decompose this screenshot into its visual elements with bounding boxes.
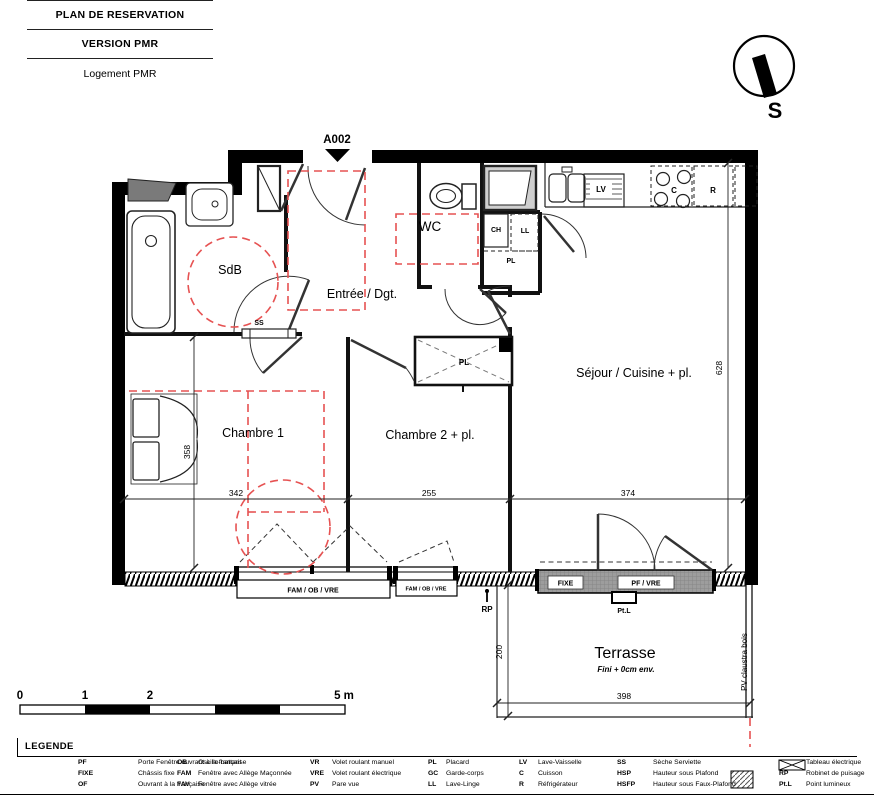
legend-label: Placard <box>446 759 469 766</box>
legend-abbr: LV <box>519 759 538 766</box>
legend-entry: Tableau électrique <box>779 759 865 770</box>
legend-label: Hauteur sous Faux-Plafond <box>653 781 736 788</box>
legend-abbr: PF <box>78 759 138 766</box>
legend-abbr: PV <box>310 781 332 788</box>
room-label-sdb: SdB <box>218 263 242 277</box>
cooktop-label: C <box>671 186 677 195</box>
towel-dryer-label: SS <box>254 320 264 327</box>
window1-label: FAM / OB / VRE <box>287 588 339 595</box>
window-swing-indicators <box>240 524 712 562</box>
window-chambre1: FAM / OB / VRE <box>234 565 392 598</box>
room-label-wc: WC <box>419 219 442 234</box>
scale-bar <box>20 705 345 714</box>
dim-200: 200 <box>494 645 504 659</box>
wardrobe-pl-label: PL <box>459 358 469 367</box>
legend-label: Fenêtre avec Allège vitrée <box>198 781 277 788</box>
window3-pf-label: PF / VRE <box>631 581 661 588</box>
legend-col-6: SSSèche Serviette HSPHauteur sous Plafon… <box>617 759 736 792</box>
kitchen-fixtures <box>545 163 757 208</box>
legend-label: Volet roulant électrique <box>332 770 401 777</box>
legend-abbr: Pt.L <box>779 781 806 788</box>
compass-needle <box>752 54 777 98</box>
legend-label: Volet roulant manuel <box>332 759 394 766</box>
wardrobe-chambre2: PL <box>415 337 512 392</box>
dim-374: 374 <box>621 488 635 498</box>
legend-entry: FAMFenêtre avec Allège Maçonnée <box>177 770 292 781</box>
window-sejour: FIXE PF / VRE <box>535 569 716 593</box>
legend-label: Point lumineux <box>806 781 851 788</box>
legend-entry: RPRobinet de puisage <box>779 770 865 781</box>
legend-abbr: VRE <box>310 770 332 777</box>
plan-title: PLAN DE RESERVATION <box>20 1 220 29</box>
claustra-label: PV claustra bois <box>740 633 749 691</box>
scale-2: 2 <box>147 690 153 702</box>
legend-label: Cuisson <box>538 770 563 777</box>
dim-342: 342 <box>229 488 243 498</box>
legend-entry: GCGarde-corps <box>428 770 484 781</box>
legend-label: Lave-Linge <box>446 781 480 788</box>
legend-label: Oscillo-battant <box>198 759 241 766</box>
legend-entry: Pt.LPoint lumineux <box>779 781 865 792</box>
legend-col-5: LVLave-Vaisselle CCuisson RRéfrigérateur <box>519 759 582 792</box>
legend-entry: PVPare vue <box>310 781 401 792</box>
legend-entry: LLLave-Linge <box>428 781 484 792</box>
legend-entry: HSPHauteur sous Plafond <box>617 770 736 781</box>
legend-label: Châssis fixe <box>138 770 175 777</box>
legend-left-bar <box>17 738 18 757</box>
plan-subtitle: Logement PMR <box>20 59 220 89</box>
room-label-sejour: Séjour / Cuisine + pl. <box>576 366 692 380</box>
rp-label: RP <box>481 605 493 614</box>
bed-chambre1 <box>131 394 197 484</box>
legend-abbr: R <box>519 781 538 788</box>
boiler-label: CH <box>491 227 501 234</box>
legend-top-rule <box>17 756 857 757</box>
legend-label: Fenêtre avec Allège Maçonnée <box>198 770 292 777</box>
scale-0: 0 <box>17 690 23 702</box>
legend-bottom-rule <box>0 794 874 795</box>
window2-label: FAM / OB / VRE <box>405 587 446 593</box>
unit-id-label: A002 <box>323 134 351 146</box>
legend-entry: HSFPHauteur sous Faux-Plafond <box>617 781 736 792</box>
legend-entry: VRVolet roulant manuel <box>310 759 401 770</box>
legend-col-7: Tableau électrique RPRobinet de puisage … <box>779 759 865 792</box>
legend-label: Tableau électrique <box>806 759 861 766</box>
entrance-marker <box>325 149 350 162</box>
closet-pl-label: PL <box>507 258 517 265</box>
dim-398: 398 <box>617 691 631 701</box>
legend-abbr: HSP <box>617 770 653 777</box>
room-label-entree: Entrée / Dgt. <box>327 287 397 301</box>
legend-col-2: OBOscillo-battant FAMFenêtre avec Allège… <box>177 759 292 792</box>
legend-abbr: PL <box>428 759 446 766</box>
legend-abbr: GC <box>428 770 446 777</box>
room-label-chambre1: Chambre 1 <box>222 426 284 440</box>
legend-title: LEGENDE <box>25 741 74 752</box>
floor-plan-drawing: FAM / OB / VRE FAM / OB / VRE FIXE PF / … <box>0 0 874 800</box>
legend-label: Robinet de puisage <box>806 770 865 777</box>
legend-abbr: VR <box>310 759 332 766</box>
wc-toilet <box>430 184 476 210</box>
dim-255: 255 <box>422 488 436 498</box>
pmr-clearance-overlays <box>129 171 750 747</box>
legend-abbr: FAM <box>177 770 198 777</box>
compass-south-label: S <box>768 98 783 123</box>
dishwasher-label: LV <box>596 185 606 194</box>
legend-abbr: HSFP <box>617 781 653 788</box>
dim-358: 358 <box>182 445 192 459</box>
legend-entry: RRéfrigérateur <box>519 781 582 792</box>
legend-entry: LVLave-Vaisselle <box>519 759 582 770</box>
washer-label: LL <box>521 228 530 235</box>
legend-abbr: LL <box>428 781 446 788</box>
legend-entry: VREVolet roulant électrique <box>310 770 401 781</box>
scale-5m: 5 m <box>334 690 354 702</box>
rp-tap <box>485 589 489 602</box>
legend-label: Garde-corps <box>446 770 484 777</box>
title-block: PLAN DE RESERVATION VERSION PMR Logement… <box>20 0 220 89</box>
legend-abbr: OB <box>177 759 198 766</box>
ptl-label: Pt.L <box>617 608 631 615</box>
terrasse-note: Fini + 0cm env. <box>597 665 654 674</box>
window3-fixe-label: FIXE <box>558 581 574 588</box>
room-label-chambre2: Chambre 2 + pl. <box>385 428 474 442</box>
legend-abbr: FAV <box>177 781 198 788</box>
legend-abbr: SS <box>617 759 653 766</box>
plan-version: VERSION PMR <box>20 30 220 58</box>
dim-628: 628 <box>714 361 724 375</box>
legend-label: Hauteur sous Plafond <box>653 770 718 777</box>
room-label-terrasse: Terrasse <box>594 645 655 662</box>
legend-abbr: OF <box>78 781 138 788</box>
legend-entry: OBOscillo-battant <box>177 759 292 770</box>
legend-abbr: RP <box>779 770 806 777</box>
legend: LEGENDE PFPorte Fenêtre ouvrant à la fra… <box>0 736 874 796</box>
legend-label: Sèche Serviette <box>653 759 701 766</box>
fridge-label: R <box>710 186 716 195</box>
legend-entry: CCuisson <box>519 770 582 781</box>
legend-entry: FAVFenêtre avec Allège vitrée <box>177 781 292 792</box>
legend-abbr: C <box>519 770 538 777</box>
legend-entry: SSSèche Serviette <box>617 759 736 770</box>
legend-abbr: FIXE <box>78 770 138 777</box>
legend-col-3: VRVolet roulant manuel VREVolet roulant … <box>310 759 401 792</box>
window-chambre2: FAM / OB / VRE <box>393 566 458 596</box>
floor-plan-page: FAM / OB / VRE FAM / OB / VRE FIXE PF / … <box>0 0 874 800</box>
legend-label: Lave-Vaisselle <box>538 759 582 766</box>
scale-1: 1 <box>82 690 89 702</box>
ptl-light <box>612 592 636 603</box>
compass <box>734 36 794 98</box>
legend-label: Réfrigérateur <box>538 781 578 788</box>
legend-entry: PLPlacard <box>428 759 484 770</box>
legend-label: Pare vue <box>332 781 359 788</box>
legend-col-4: PLPlacard GCGarde-corps LLLave-Linge <box>428 759 484 792</box>
